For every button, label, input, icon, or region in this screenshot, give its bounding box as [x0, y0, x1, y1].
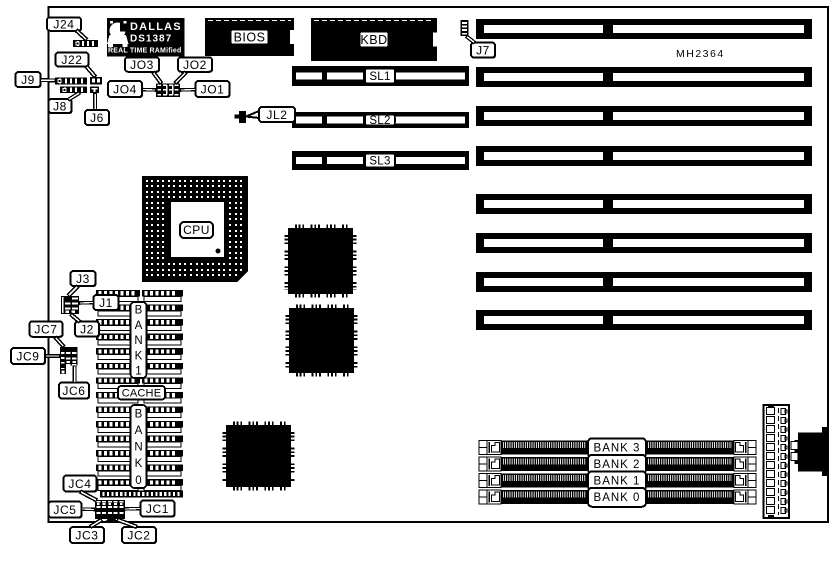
- svg-text:BANK 0: BANK 0: [594, 492, 641, 504]
- svg-text:JC2: JC2: [127, 528, 150, 542]
- svg-text:JC5: JC5: [53, 503, 76, 517]
- svg-text:N: N: [134, 442, 142, 454]
- svg-text:MH2364: MH2364: [676, 48, 725, 60]
- svg-text:1: 1: [135, 366, 141, 378]
- svg-text:JL2: JL2: [266, 108, 287, 122]
- svg-text:A: A: [135, 320, 143, 332]
- svg-text:DS1387: DS1387: [130, 34, 172, 45]
- svg-text:DALLAS: DALLAS: [130, 21, 182, 33]
- svg-text:JC1: JC1: [146, 502, 169, 516]
- svg-text:REAL TIME RAMified: REAL TIME RAMified: [108, 48, 181, 55]
- svg-text:J6: J6: [90, 111, 104, 125]
- svg-text:K: K: [135, 458, 143, 470]
- svg-text:JC3: JC3: [75, 528, 98, 542]
- svg-text:0: 0: [135, 475, 141, 487]
- svg-text:JC9: JC9: [16, 349, 39, 363]
- svg-text:JO3: JO3: [130, 58, 154, 72]
- svg-text:SL3: SL3: [369, 156, 390, 168]
- svg-text:BIOS: BIOS: [234, 31, 266, 45]
- svg-text:N: N: [134, 335, 142, 347]
- svg-text:CPU: CPU: [183, 223, 210, 237]
- svg-text:B: B: [135, 305, 143, 317]
- svg-text:JC4: JC4: [68, 477, 91, 491]
- svg-text:J3: J3: [76, 272, 90, 286]
- svg-text:K: K: [135, 350, 143, 362]
- svg-text:J9: J9: [21, 73, 35, 87]
- svg-text:A: A: [135, 425, 143, 437]
- svg-text:J7: J7: [476, 43, 490, 57]
- svg-text:JO2: JO2: [183, 58, 207, 72]
- svg-text:JC7: JC7: [34, 322, 57, 336]
- svg-text:J24: J24: [53, 17, 74, 31]
- svg-text:JO1: JO1: [201, 82, 225, 96]
- svg-text:BANK 1: BANK 1: [594, 476, 641, 488]
- svg-text:JC6: JC6: [62, 384, 85, 398]
- svg-text:SL2: SL2: [369, 115, 390, 127]
- svg-text:CACHE: CACHE: [122, 388, 162, 400]
- svg-text:J2: J2: [80, 322, 94, 336]
- svg-text:JO4: JO4: [113, 82, 137, 96]
- svg-text:B: B: [135, 408, 143, 420]
- svg-text:J22: J22: [61, 53, 82, 67]
- svg-text:BANK 2: BANK 2: [594, 459, 641, 471]
- svg-text:KBD: KBD: [360, 33, 387, 47]
- svg-text:BANK 3: BANK 3: [594, 443, 641, 455]
- svg-text:J8: J8: [53, 99, 67, 113]
- svg-text:J1: J1: [99, 296, 113, 310]
- svg-text:SL1: SL1: [369, 71, 390, 83]
